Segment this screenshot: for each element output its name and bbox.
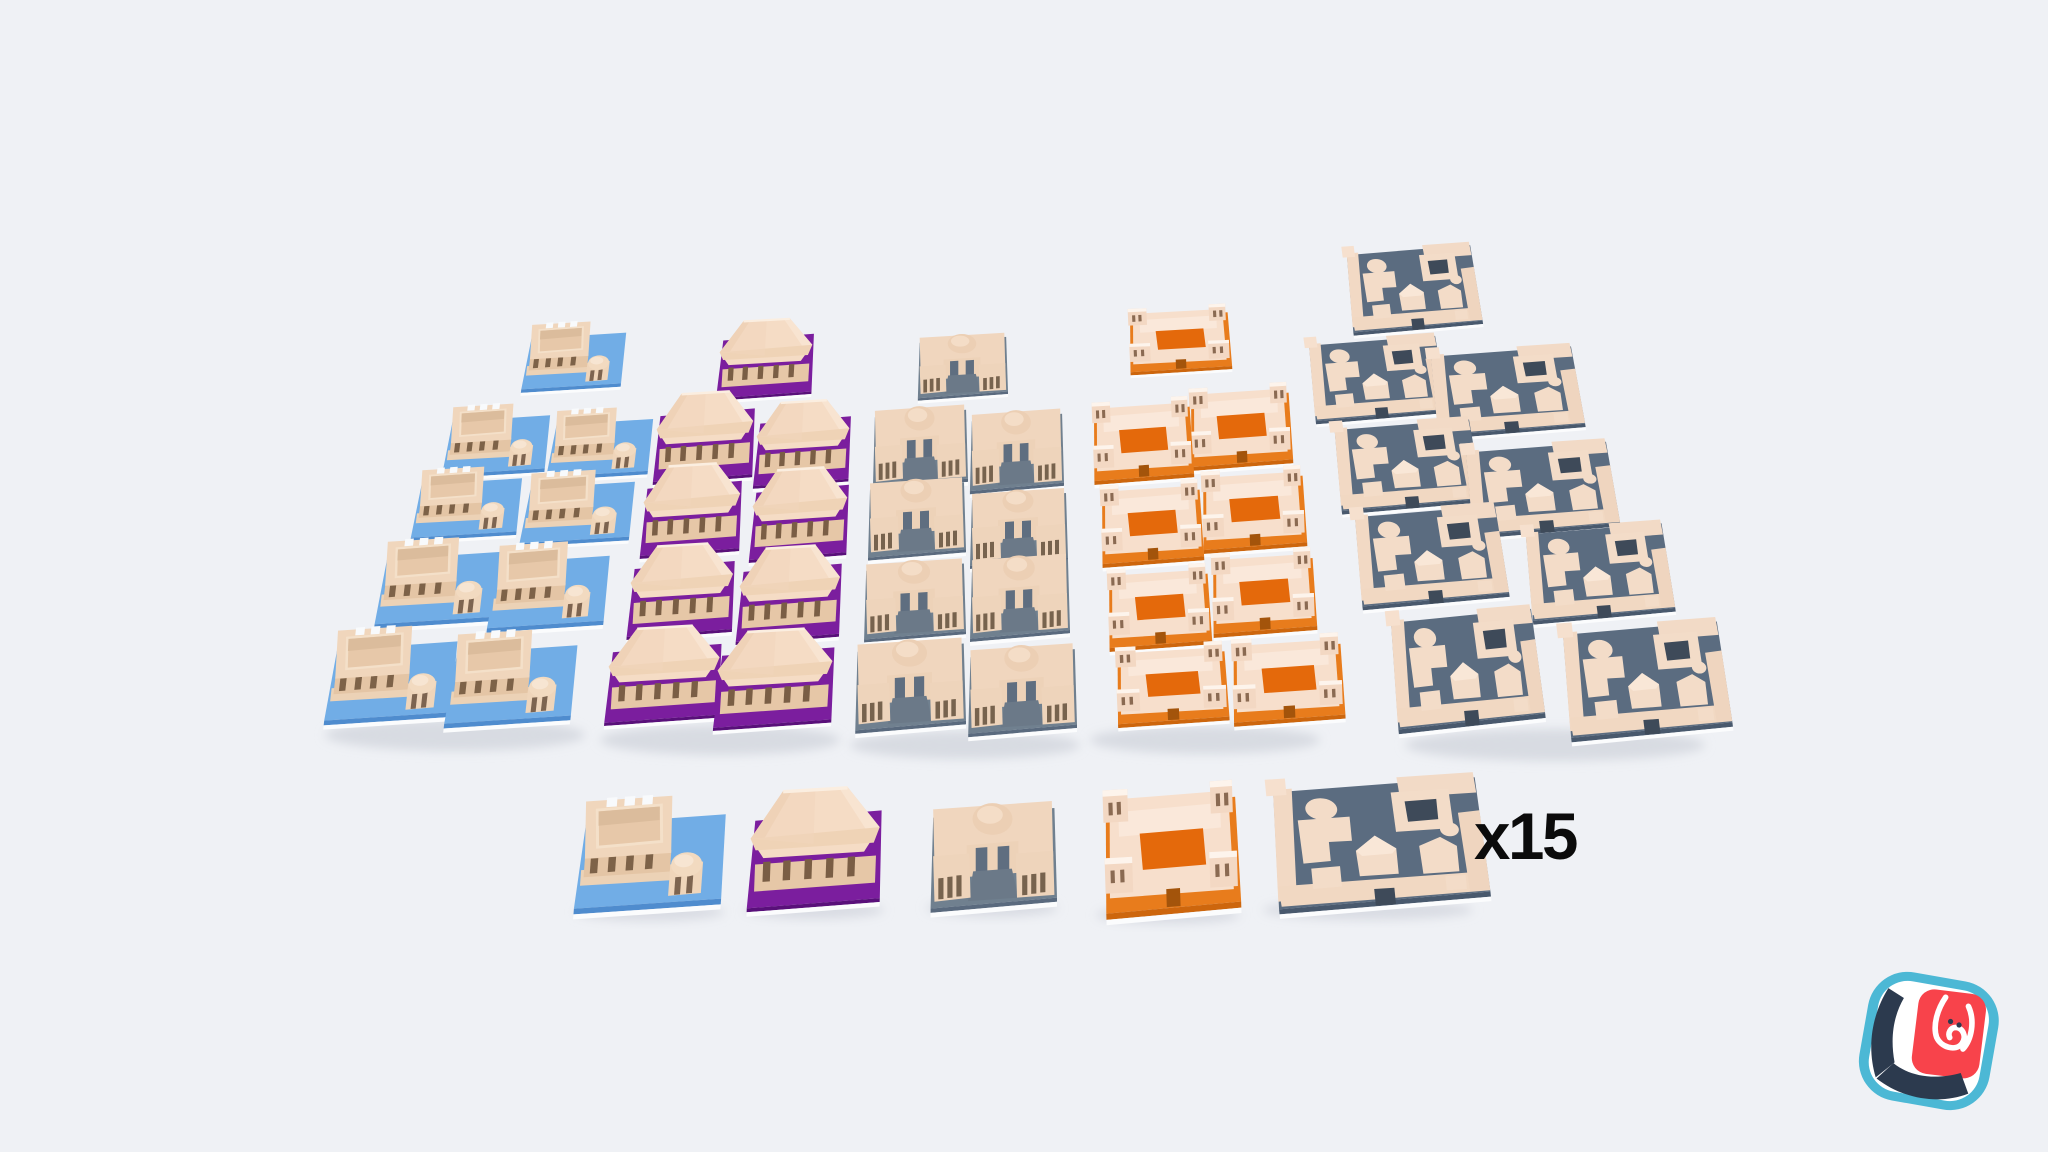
svg-text:x15: x15 [1474, 800, 1577, 873]
